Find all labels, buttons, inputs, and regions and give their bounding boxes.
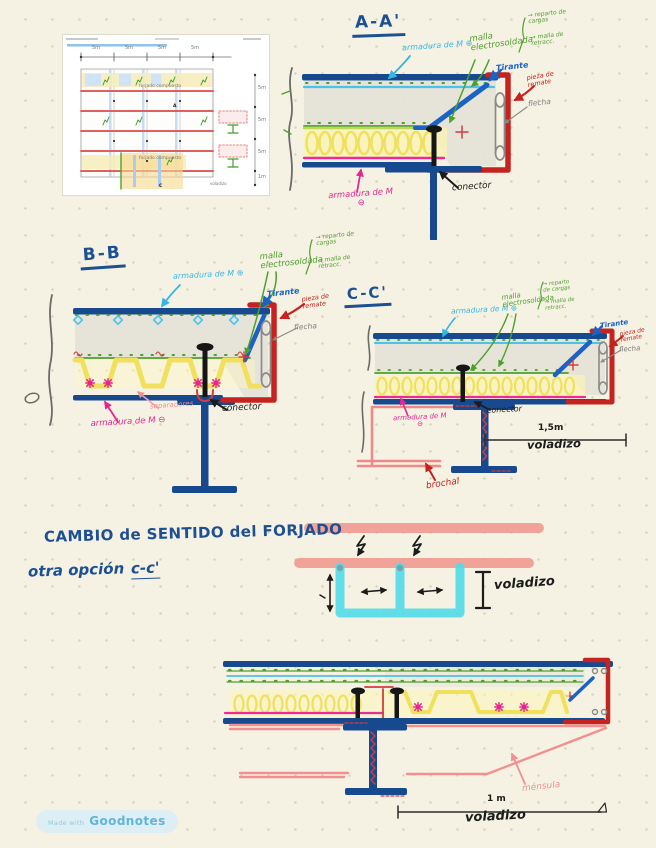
dim-label-voladizo-bottom: voladizo: [465, 808, 527, 825]
dim-length-cc: 1,5m: [538, 424, 563, 433]
break-line-lower: [362, 392, 364, 452]
slab-span-bar: [294, 558, 534, 568]
beam-bottom-flange: [172, 486, 237, 493]
label-retraccion-bb: → malla de retracc.: [317, 254, 360, 271]
label-flecha-cc: flecha: [619, 345, 641, 354]
plan-inset-image[interactable]: 5m 5m 5m 5m 5m 5m 5m 1m forjado compuest…: [62, 34, 270, 196]
note-option-ref: c-c': [131, 561, 160, 580]
break-line: [289, 68, 292, 190]
slab-bottom-chord: [223, 718, 605, 724]
plan-dim-right-3: 5m: [258, 149, 266, 155]
break-line: [49, 295, 52, 425]
plan-dim-top-1: 5m: [92, 45, 100, 51]
plan-dim-right-1: 5m: [258, 85, 266, 91]
plan-voladizo-label: voladizo: [210, 181, 227, 186]
dim-label-voladizo-cc: voladizo: [527, 437, 581, 451]
plan-dim-top-4: 5m: [191, 45, 199, 51]
badge-app-name: Goodnotes: [89, 814, 165, 828]
plan-dim-top-2: 5m: [125, 45, 133, 51]
beam-web: [430, 173, 437, 241]
section-title-aa: A-A': [352, 13, 405, 38]
plan-dim-right-4: 1m: [258, 174, 266, 180]
beam-web: [201, 405, 209, 486]
slab-top-chord: [223, 661, 613, 667]
goodnotes-page: 5m 5m 5m 5m 5m 5m 5m 1m forjado compuest…: [0, 0, 656, 848]
beam-bottom-flange: [345, 788, 407, 795]
plan-area-label-1: forjado compuesto: [139, 84, 181, 89]
goodnotes-badge[interactable]: Made with Goodnotes: [36, 810, 178, 833]
badge-made-with: Made with: [48, 819, 84, 827]
beam-web: [369, 731, 377, 789]
label-armadura-negativa-cc: armadura de M ⊖: [391, 412, 450, 430]
corbel-mensula: [230, 725, 606, 777]
edge-stirrup: [496, 93, 505, 160]
plan-dim-right-2: 5m: [258, 117, 266, 123]
hook-symbol: [24, 392, 40, 405]
slab-top-chord: [373, 333, 607, 339]
label-reparto-bb: → reparto de cargas: [315, 231, 358, 248]
note-option-prefix: otra opción: [28, 561, 125, 580]
plan-dim-top-3: 5m: [158, 45, 166, 51]
depth-bracket: [476, 572, 490, 608]
slab-top-chord: [73, 308, 270, 315]
beam-bottom-flange: [451, 466, 517, 473]
edge-stirrup: [593, 669, 607, 715]
plan-section-mark-a: A: [173, 104, 176, 109]
plan-area-label-2: forjado compuesto: [139, 156, 181, 161]
break-line-upper: [368, 326, 370, 370]
section-title-cc: C-C': [343, 285, 391, 308]
beam-top-flange: [343, 724, 407, 731]
dim-length-bottom: 1 m: [487, 795, 506, 804]
section-title-bb: B-B: [79, 244, 125, 270]
section-cc-sketch: [340, 280, 656, 515]
plan-section-mark-c: C: [159, 184, 162, 189]
section-bottom-sketch: [215, 650, 656, 848]
beam-top-flange: [385, 166, 482, 173]
label-flecha-bb: flecha: [294, 322, 317, 331]
plan-sketch: [63, 35, 269, 195]
